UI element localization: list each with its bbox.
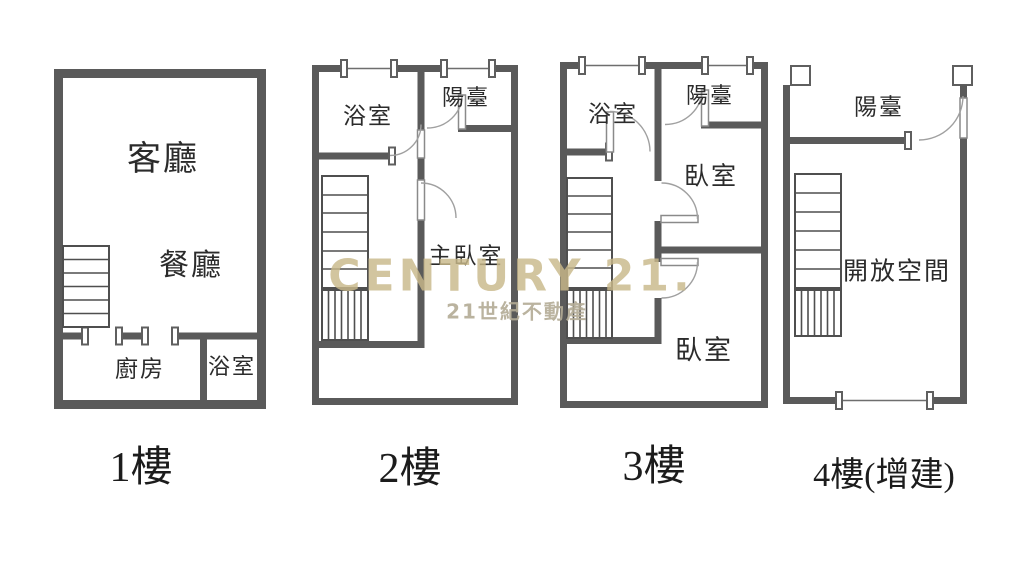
window-jamb bbox=[441, 60, 447, 77]
floor-caption-4f: 4樓(增建) bbox=[813, 459, 955, 493]
room-label-bath-2f: 浴室 bbox=[343, 105, 393, 128]
floor-caption-2f: 2樓 bbox=[378, 448, 441, 490]
door-jamb bbox=[82, 328, 88, 345]
room-label-balcony-3f: 陽臺 bbox=[686, 85, 734, 107]
floorplan-image: 客廳 餐廳 廚房 浴室 浴室 陽臺 主臥室 浴室 陽臺 臥室 臥室 陽臺 開放空… bbox=[0, 0, 1024, 566]
door-leaf bbox=[960, 98, 967, 138]
floor-caption-3f: 3樓 bbox=[622, 446, 685, 488]
door-leaf bbox=[418, 180, 425, 220]
window-jamb bbox=[639, 57, 645, 74]
room-label-bedroom2-3f: 臥室 bbox=[675, 338, 733, 365]
window-jamb bbox=[702, 57, 708, 74]
floor-caption-1f: 1樓 bbox=[109, 447, 172, 489]
door-jamb bbox=[905, 132, 911, 149]
door-jamb bbox=[172, 328, 178, 345]
window-jamb bbox=[836, 392, 842, 409]
room-label-kitchen-1f: 廚房 bbox=[115, 358, 165, 381]
door-jamb bbox=[142, 328, 148, 345]
window-jamb bbox=[579, 57, 585, 74]
watermark-tagline: 21世紀不動產 bbox=[446, 296, 588, 325]
room-label-living-1f: 客廳 bbox=[127, 143, 199, 177]
room-label-bedroom1-3f: 臥室 bbox=[684, 165, 738, 190]
room-label-bath-1f: 浴室 bbox=[208, 356, 256, 378]
door-leaf bbox=[661, 216, 698, 223]
window-jamb bbox=[341, 60, 347, 77]
room-label-balcony-2f: 陽臺 bbox=[442, 87, 490, 109]
corner-post bbox=[953, 66, 972, 85]
window-jamb bbox=[391, 60, 397, 77]
watermark-brand: CENTURY 21. bbox=[328, 251, 694, 302]
room-label-dining-1f: 餐廳 bbox=[159, 251, 223, 281]
door-leaf bbox=[418, 130, 425, 158]
room-label-bath-3f: 浴室 bbox=[588, 103, 638, 126]
window-jamb bbox=[489, 60, 495, 77]
door-arc-balcony-4f bbox=[919, 96, 963, 140]
corner-post bbox=[791, 66, 810, 85]
room-label-open-4f: 開放空間 bbox=[843, 260, 951, 285]
window-jamb bbox=[747, 57, 753, 74]
room-label-balcony-4f: 陽臺 bbox=[854, 96, 904, 119]
window-jamb bbox=[927, 392, 933, 409]
door-arc-master-2f bbox=[421, 183, 456, 218]
door-jamb bbox=[116, 328, 122, 345]
